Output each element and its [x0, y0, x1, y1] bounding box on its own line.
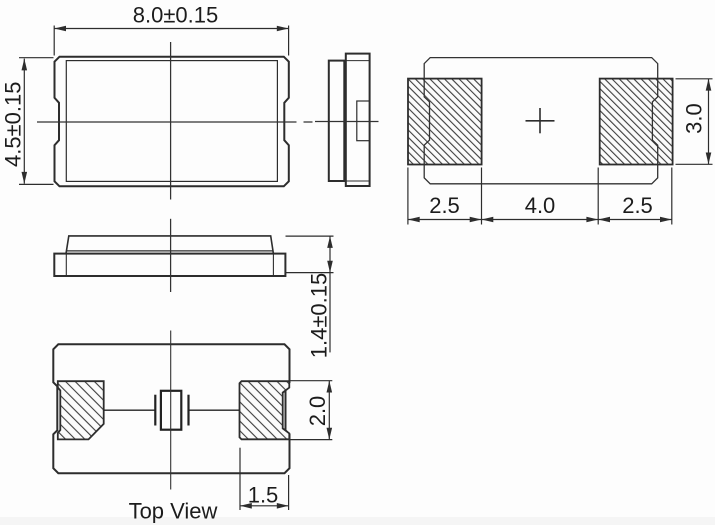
svg-text:2.5: 2.5: [429, 193, 460, 218]
svg-text:1.4±0.15: 1.4±0.15: [306, 273, 331, 358]
svg-text:3.0: 3.0: [682, 103, 707, 134]
svg-text:4.5±0.15: 4.5±0.15: [0, 82, 25, 167]
svg-text:2.0: 2.0: [305, 396, 330, 427]
svg-text:2.5: 2.5: [622, 193, 653, 218]
svg-text:1.5: 1.5: [248, 483, 279, 508]
svg-text:4.0: 4.0: [525, 193, 556, 218]
svg-text:8.0±0.15: 8.0±0.15: [133, 3, 218, 28]
svg-text:Top View: Top View: [129, 499, 218, 524]
